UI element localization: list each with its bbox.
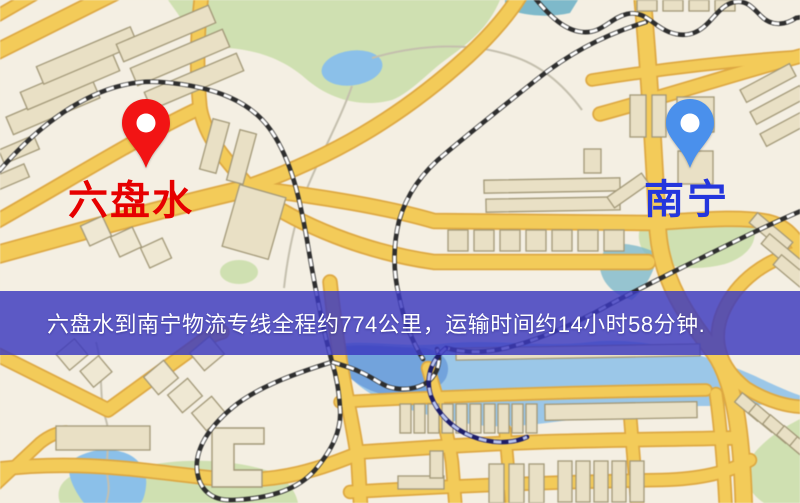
route-info-text: 六盘水到南宁物流专线全程约774公里，运输时间约14小时58分钟. — [47, 307, 705, 339]
destination-marker[interactable] — [664, 98, 716, 170]
destination-label: 南宁 — [644, 180, 730, 220]
origin-pin-icon — [122, 99, 170, 168]
map-screenshot: 六盘水 南宁 六盘水到南宁物流专线全程约774公里，运输时间约14小时58分钟. — [0, 0, 800, 503]
destination-pin-hole — [681, 114, 700, 133]
destination-pin-icon — [666, 99, 714, 168]
origin-marker[interactable] — [120, 98, 172, 170]
origin-label: 六盘水 — [68, 181, 194, 221]
origin-pin-hole — [137, 114, 156, 133]
route-info-banner: 六盘水到南宁物流专线全程约774公里，运输时间约14小时58分钟. — [0, 291, 800, 355]
map-canvas — [0, 0, 800, 503]
